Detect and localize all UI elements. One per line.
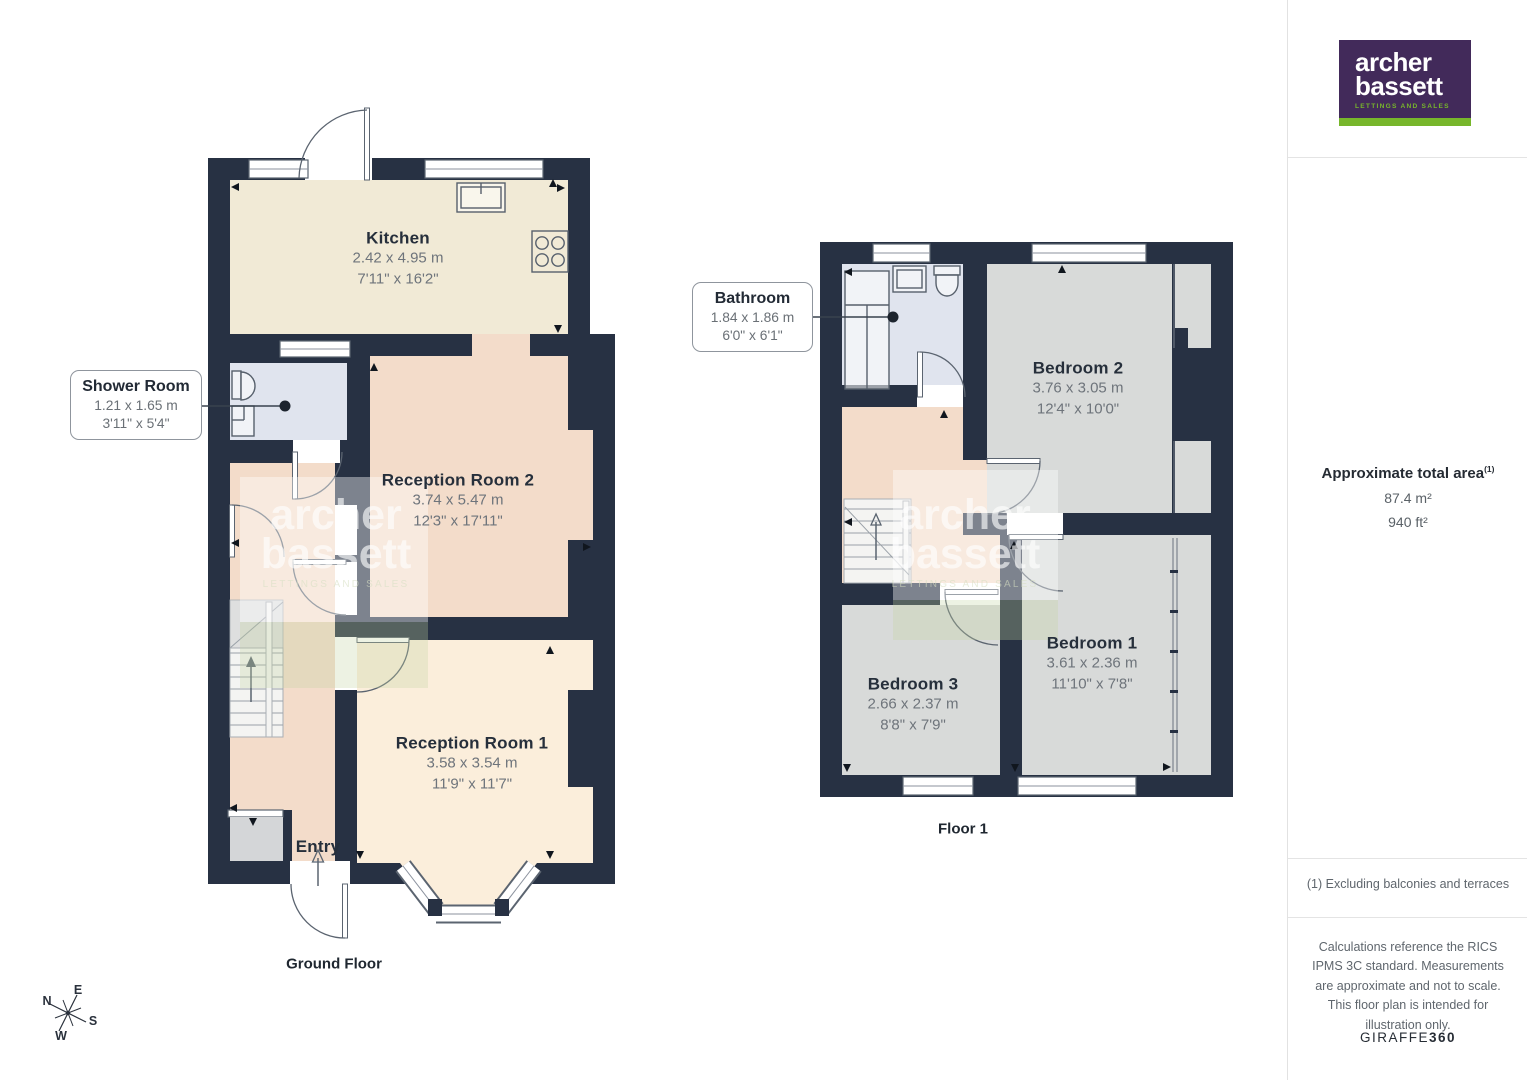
watermark-first — [893, 470, 1058, 640]
toilet-icon — [232, 371, 241, 399]
sidebar-divider — [1288, 157, 1527, 158]
sidebar-divider — [1288, 917, 1527, 918]
total-area-block: Approximate total area(1) 87.4 m² 940 ft… — [1288, 464, 1527, 530]
compass-s: S — [89, 1014, 97, 1028]
bedroom3-label: Bedroom 3 2.66 x 2.37 m 8'8" x 7'9" — [868, 674, 959, 735]
entry-label: Entry — [296, 837, 340, 857]
giraffe360-brand: GIRAFFE360 — [1288, 1030, 1527, 1045]
kitchen-label: Kitchen 2.42 x 4.95 m 7'11" x 16'2" — [353, 228, 444, 289]
compass-n: N — [42, 994, 51, 1008]
disclaimer-text: Calculations reference the RICS IPMS 3C … — [1312, 938, 1504, 1035]
toilet-icon — [934, 266, 960, 275]
info-sidebar: archer bassett LETTINGS AND SALES Approx… — [1287, 0, 1527, 1080]
total-area-metric: 87.4 m² — [1288, 490, 1527, 506]
reception1-label: Reception Room 1 3.58 x 3.54 m 11'9" x 1… — [396, 733, 548, 794]
ground-floor-label: Ground Floor — [286, 956, 382, 973]
floorplan-drawing — [0, 0, 1287, 1080]
total-area-title: Approximate total area(1) — [1288, 464, 1527, 482]
logo-green-bar — [1339, 118, 1471, 126]
total-area-imperial: 940 ft² — [1288, 514, 1527, 530]
area-footnote: (1) Excluding balconies and terraces — [1288, 877, 1527, 891]
bedroom1-label: Bedroom 1 3.61 x 2.36 m 11'10" x 7'8" — [1047, 633, 1138, 694]
shower-tray-icon — [232, 406, 254, 436]
sidebar-divider — [1288, 858, 1527, 859]
shower-room-callout: Shower Room 1.21 x 1.65 m 3'11" x 5'4" — [70, 370, 202, 440]
compass-e: E — [74, 983, 82, 997]
compass-icon — [50, 995, 86, 1031]
agency-logo: archer bassett LETTINGS AND SALES — [1339, 40, 1471, 126]
agency-logo-mark: archer bassett LETTINGS AND SALES — [1339, 40, 1471, 118]
reception2-label: Reception Room 2 3.74 x 5.47 m 12'3" x 1… — [382, 470, 534, 531]
porch — [230, 817, 283, 861]
bedroom2-label: Bedroom 2 3.76 x 3.05 m 12'4" x 10'0" — [1033, 358, 1124, 419]
first-floor-label: Floor 1 — [938, 821, 988, 838]
bathroom-callout: Bathroom 1.84 x 1.86 m 6'0" x 6'1" — [692, 282, 813, 352]
floorplan-page: Kitchen 2.42 x 4.95 m 7'11" x 16'2" Rece… — [0, 0, 1527, 1080]
compass-w: W — [55, 1029, 67, 1043]
